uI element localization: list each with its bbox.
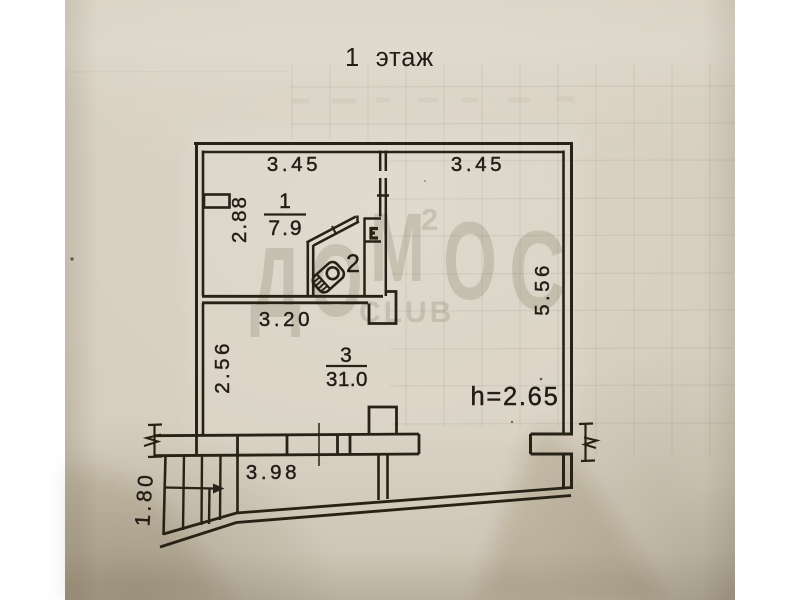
svg-text:3.20: 3.20 [259,308,313,331]
svg-text:3: 3 [340,344,352,367]
svg-text:2.56: 2.56 [211,340,234,394]
svg-text:1 этаж: 1 этаж [345,44,434,72]
svg-text:М: М [370,193,425,302]
svg-text:2.88: 2.88 [228,195,251,243]
svg-text:7.9: 7.9 [268,217,303,240]
svg-text:3.98: 3.98 [246,461,300,484]
svg-text:О: О [310,224,363,338]
svg-text:5.56: 5.56 [531,262,554,316]
svg-text:1: 1 [279,190,291,213]
svg-text:1.80: 1.80 [131,471,158,527]
svg-text:h=2.65: h=2.65 [471,383,560,411]
svg-text:3.45: 3.45 [267,153,321,176]
svg-text:2: 2 [421,202,438,237]
svg-text:3.45: 3.45 [451,153,505,176]
svg-text:31.0: 31.0 [326,368,368,391]
svg-text:2: 2 [346,250,360,278]
